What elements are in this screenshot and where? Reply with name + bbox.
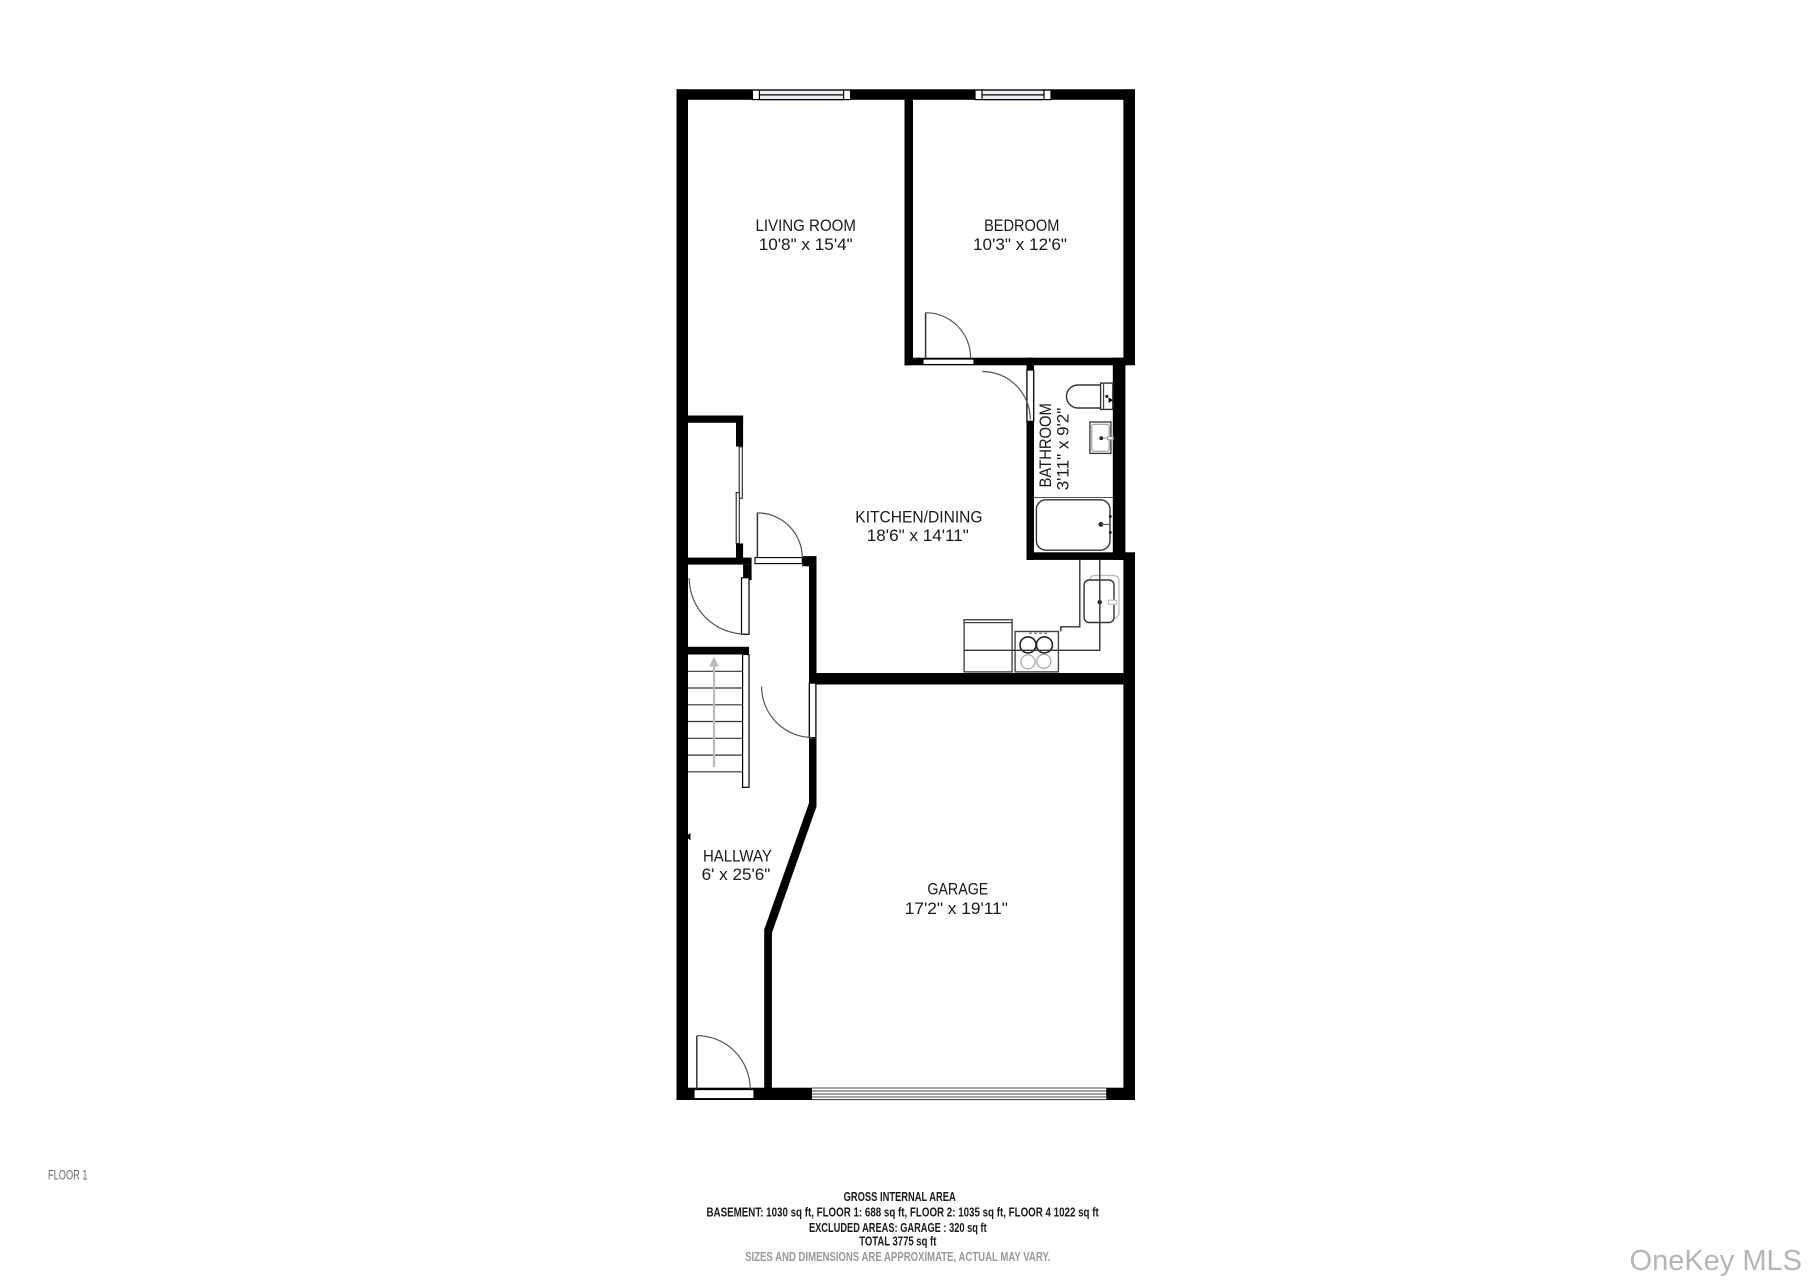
svg-text:OneKey MLS: OneKey MLS <box>1630 1245 1802 1277</box>
svg-text:SIZES AND DIMENSIONS ARE APPRO: SIZES AND DIMENSIONS ARE APPROXIMATE, AC… <box>745 1251 1050 1265</box>
svg-text:17'2" x 19'11": 17'2" x 19'11" <box>905 899 1008 917</box>
svg-text:FLOOR 1: FLOOR 1 <box>48 1166 88 1183</box>
svg-text:BASEMENT: 1030 sq ft, FLOOR 1:: BASEMENT: 1030 sq ft, FLOOR 1: 688 sq ft… <box>706 1205 1098 1220</box>
svg-text:18'6" x 14'11": 18'6" x 14'11" <box>867 526 969 545</box>
svg-text:EXCLUDED AREAS: GARAGE : 320 s: EXCLUDED AREAS: GARAGE : 320 sq ft <box>809 1222 987 1236</box>
svg-text:GARAGE: GARAGE <box>927 881 988 899</box>
svg-text:GROSS INTERNAL AREA: GROSS INTERNAL AREA <box>844 1191 956 1205</box>
svg-text:HALLWAY: HALLWAY <box>703 848 772 866</box>
svg-text:KITCHEN/DINING: KITCHEN/DINING <box>855 509 982 526</box>
svg-text:3'11" x 9'2": 3'11" x 9'2" <box>1054 408 1073 491</box>
svg-text:6' x 25'6": 6' x 25'6" <box>702 865 771 884</box>
svg-text:10'8" x 15'4": 10'8" x 15'4" <box>759 235 853 254</box>
svg-text:LIVING ROOM: LIVING ROOM <box>755 218 855 236</box>
svg-text:BEDROOM: BEDROOM <box>984 217 1059 235</box>
svg-text:BATHROOM: BATHROOM <box>1037 403 1055 487</box>
svg-text:10'3" x 12'6": 10'3" x 12'6" <box>973 235 1067 254</box>
svg-text:TOTAL 3775 sq ft: TOTAL 3775 sq ft <box>859 1235 936 1249</box>
